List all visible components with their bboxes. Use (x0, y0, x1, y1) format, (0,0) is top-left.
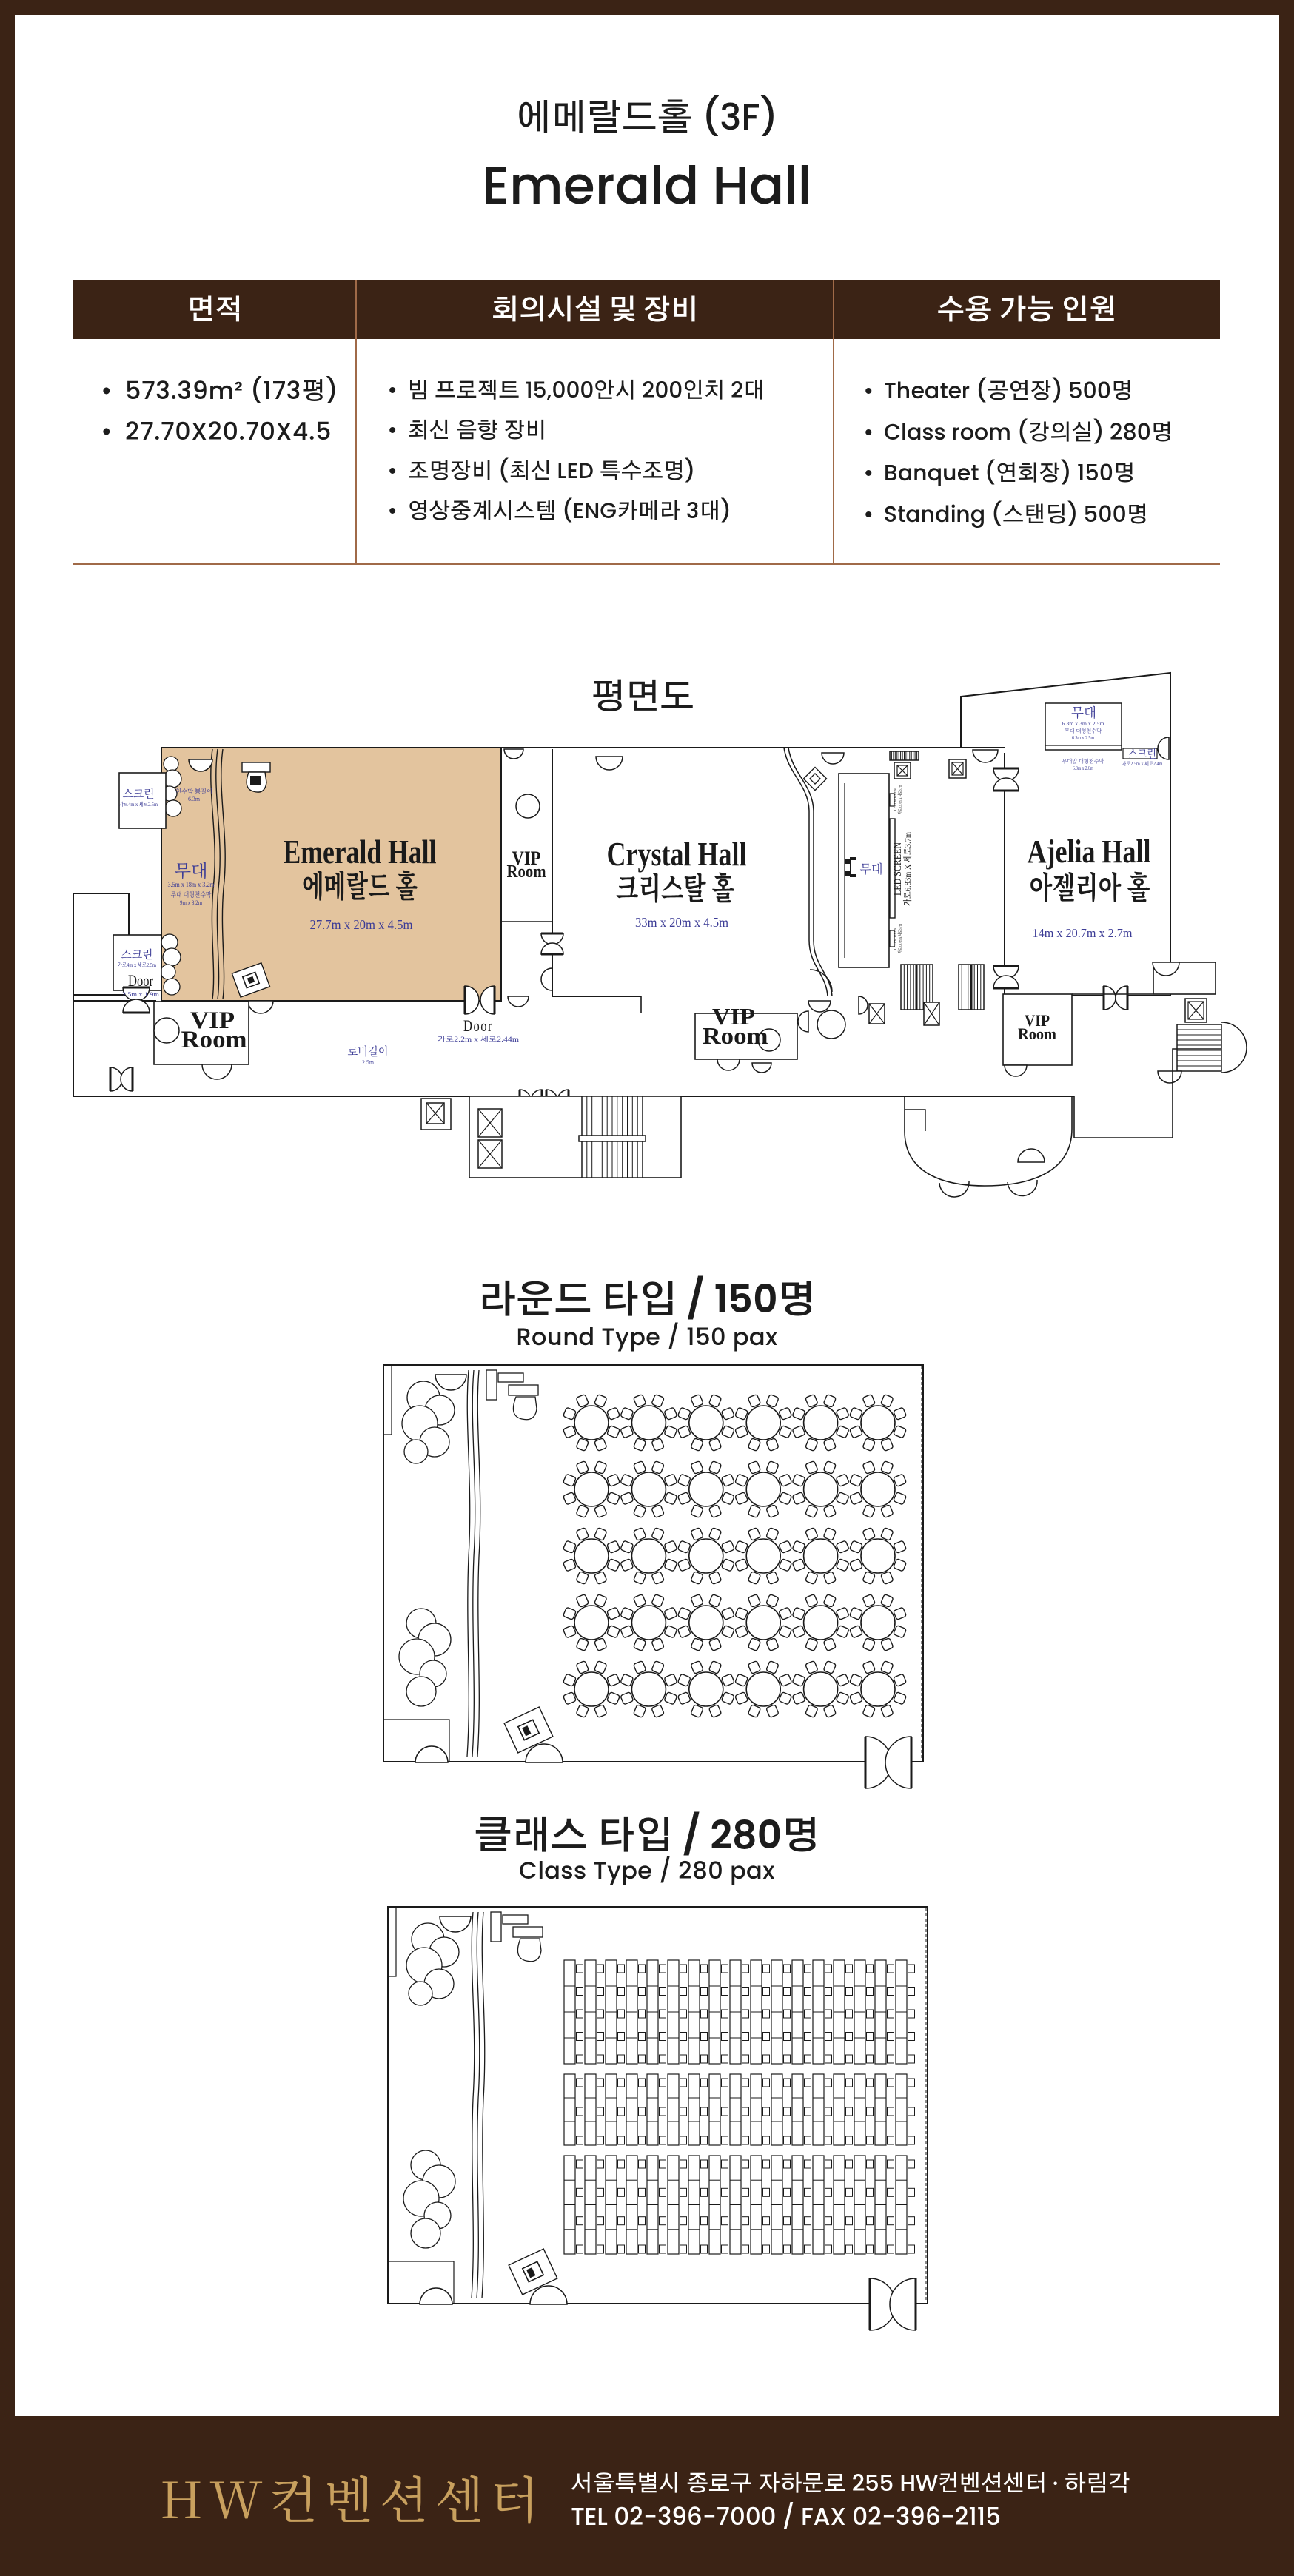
svg-text:Emerald Hall: Emerald Hall (284, 833, 437, 871)
svg-text:Door: Door (128, 971, 154, 990)
svg-text:2.5m x 1.9m: 2.5m x 1.9m (122, 990, 159, 998)
svg-text:3.5m x 18m x 3.2m: 3.5m x 18m x 3.2m (168, 882, 215, 889)
svg-text:Room: Room (703, 1022, 768, 1049)
svg-text:아젤리아 홀: 아젤리아 홀 (1030, 871, 1150, 906)
svg-text:천수막 봉길이: 천수막 봉길이 (175, 788, 212, 795)
svg-text:크리스탈 홀: 크리스탈 홀 (616, 872, 734, 907)
svg-text:가로6.83m X 세로3.7m: 가로6.83m X 세로3.7m (902, 831, 913, 906)
svg-text:무대: 무대 (175, 862, 208, 882)
svg-text:가로4m x 세로2.5m: 가로4m x 세로2.5m (118, 962, 156, 968)
svg-text:스크린: 스크린 (121, 948, 153, 962)
svg-text:6.3m x 2.5m: 6.3m x 2.5m (1072, 735, 1094, 741)
svg-text:Door: Door (463, 1016, 493, 1035)
svg-text:무대 대형천수막: 무대 대형천수막 (1065, 728, 1102, 734)
svg-text:2.5m: 2.5m (362, 1059, 375, 1066)
svg-text:에메랄드 홀: 에메랄드 홀 (302, 870, 418, 905)
svg-text:Room: Room (1018, 1024, 1056, 1043)
svg-text:9m x 3.2m: 9m x 3.2m (180, 899, 202, 906)
svg-text:스크린: 스크린 (1128, 748, 1156, 761)
svg-text:6.3m x 3m x 2.5m: 6.3m x 3m x 2.5m (1062, 720, 1104, 727)
svg-text:가로2.5m x 세로2.4m: 가로2.5m x 세로2.4m (1122, 760, 1163, 767)
svg-text:스크린: 스크린 (123, 788, 155, 801)
svg-text:Crystal Hall: Crystal Hall (607, 835, 747, 873)
svg-text:로비길이: 로비길이 (348, 1045, 389, 1059)
svg-text:LED SCREEN: LED SCREEN (893, 928, 898, 950)
svg-text:가로0.97m X 세로3.7m: 가로0.97m X 세로3.7m (897, 924, 903, 953)
svg-text:6.3m: 6.3m (188, 796, 201, 802)
svg-text:무대: 무대 (860, 862, 883, 876)
svg-text:LED SCREEN: LED SCREEN (893, 788, 898, 811)
svg-text:6.3m x 2.6m: 6.3m x 2.6m (1073, 765, 1093, 771)
svg-text:무대앞 대형천수막: 무대앞 대형천수막 (1062, 758, 1105, 765)
svg-text:33m x 20m x 4.5m: 33m x 20m x 4.5m (635, 915, 728, 930)
svg-text:Ajelia Hall: Ajelia Hall (1028, 833, 1151, 870)
svg-text:Room: Room (181, 1027, 247, 1053)
svg-text:무대: 무대 (1071, 705, 1096, 720)
svg-text:27.7m x 20m x 4.5m: 27.7m x 20m x 4.5m (310, 917, 413, 932)
svg-text:가로4m x 세로2.5m: 가로4m x 세로2.5m (119, 801, 158, 808)
svg-text:가로0.97m X 세로3.7m: 가로0.97m X 세로3.7m (897, 785, 903, 814)
svg-text:가로2.2m x 세로2.44m: 가로2.2m x 세로2.44m (438, 1036, 519, 1043)
svg-text:Room: Room (507, 862, 546, 882)
svg-text:14m x 20.7m x 2.7m: 14m x 20.7m x 2.7m (1033, 926, 1133, 940)
